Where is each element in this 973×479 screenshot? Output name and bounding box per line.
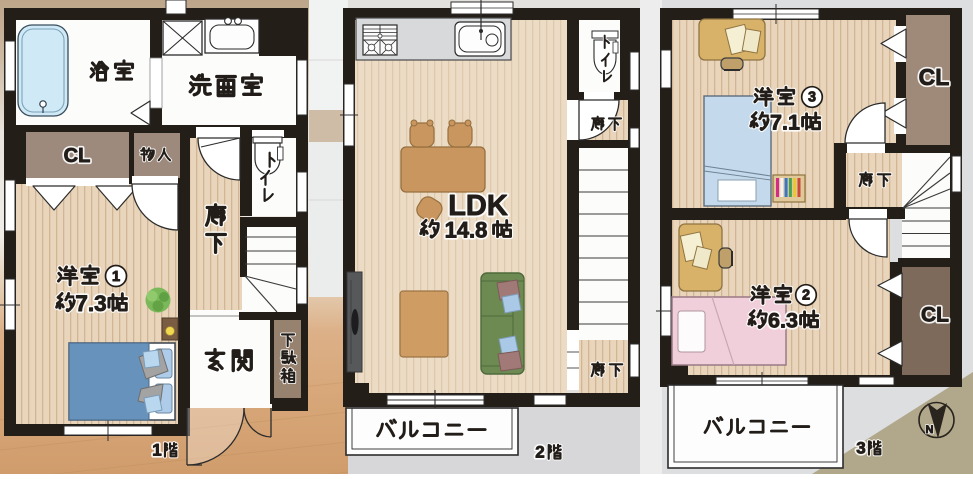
svg-text:CL: CL — [919, 64, 950, 90]
svg-text:7.3: 7.3 — [75, 291, 106, 316]
svg-text:6.3: 6.3 — [768, 309, 798, 333]
svg-text:7.1: 7.1 — [770, 111, 800, 135]
svg-text:1: 1 — [152, 441, 161, 460]
svg-text:2: 2 — [802, 288, 810, 304]
svg-text:N: N — [926, 424, 934, 436]
svg-text:3: 3 — [808, 90, 816, 106]
svg-text:CL: CL — [921, 304, 949, 327]
svg-text:3: 3 — [856, 439, 865, 458]
svg-text:14.8: 14.8 — [445, 218, 488, 243]
svg-text:1: 1 — [112, 268, 120, 285]
svg-text:CL: CL — [64, 145, 91, 167]
svg-text:2: 2 — [535, 443, 544, 462]
